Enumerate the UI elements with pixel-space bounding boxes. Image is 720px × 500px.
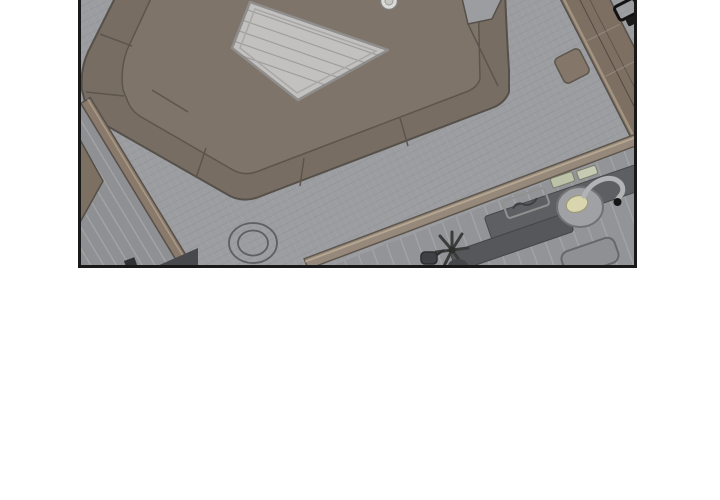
side-box [553,47,591,85]
scene [78,0,637,268]
floor-cushion-rings [229,223,277,263]
entry-door [78,136,103,226]
comic-panel [78,0,637,268]
hall-object [124,257,137,268]
teacup [381,0,398,10]
page: { "scene": { "title": "Comic panel: over… [0,0,720,500]
scene-objects [78,0,637,268]
kitchen-stool [559,236,620,268]
sink [557,187,603,227]
